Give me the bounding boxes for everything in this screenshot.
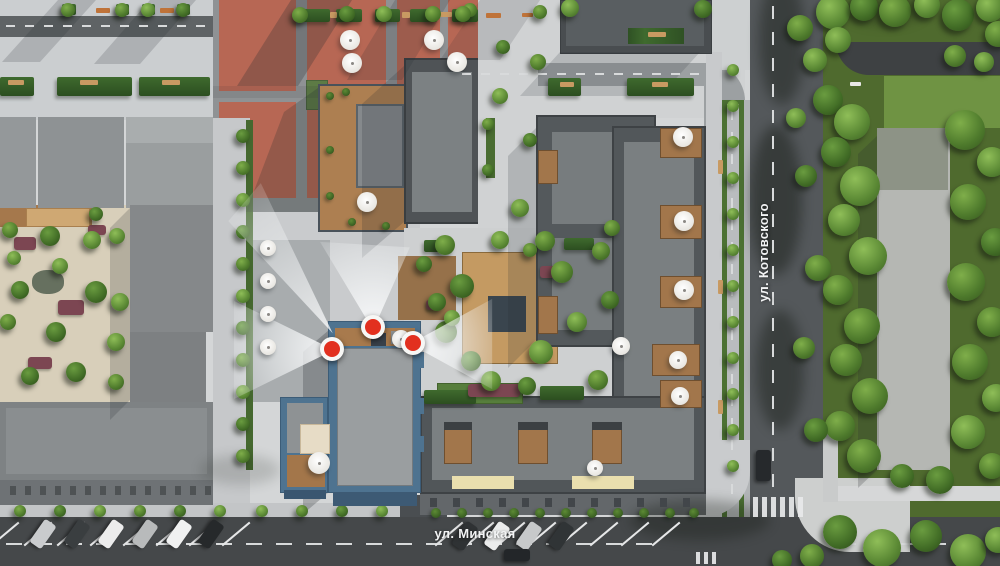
cafe-umbrella — [674, 211, 694, 231]
cafe-umbrella — [342, 53, 362, 73]
viewpoint-marker[interactable] — [401, 331, 425, 355]
street-name-kotovskogo: ул. Котовского — [756, 203, 771, 302]
cafe-umbrella — [340, 30, 360, 50]
cafe-umbrella — [260, 339, 276, 355]
cafe-umbrella — [357, 192, 377, 212]
site-plan: ул. Минская ул. Котовского — [0, 0, 1000, 566]
cafe-umbrella — [673, 127, 693, 147]
cafe-umbrella — [612, 337, 630, 355]
cafe-umbrella — [260, 306, 276, 322]
cafe-umbrella — [447, 52, 467, 72]
street-label-minskaya: ул. Минская — [415, 524, 535, 542]
viewpoint-marker[interactable] — [320, 337, 344, 361]
cafe-umbrella — [671, 387, 689, 405]
street-label-kotovskogo: ул. Котовского — [736, 192, 790, 312]
cafe-umbrella — [260, 240, 276, 256]
balcony-tab — [417, 436, 424, 452]
cafe-umbrella — [308, 452, 330, 474]
viewpoint-marker[interactable] — [361, 315, 385, 339]
marker-layer — [0, 0, 1000, 566]
street-name-minskaya: ул. Минская — [434, 526, 515, 541]
cafe-umbrella — [424, 30, 444, 50]
cafe-umbrella — [674, 280, 694, 300]
cafe-umbrella — [669, 351, 687, 369]
cafe-umbrella — [260, 273, 276, 289]
cafe-umbrella — [587, 460, 603, 476]
balcony-tab — [417, 352, 424, 368]
balcony-tab — [417, 398, 424, 414]
